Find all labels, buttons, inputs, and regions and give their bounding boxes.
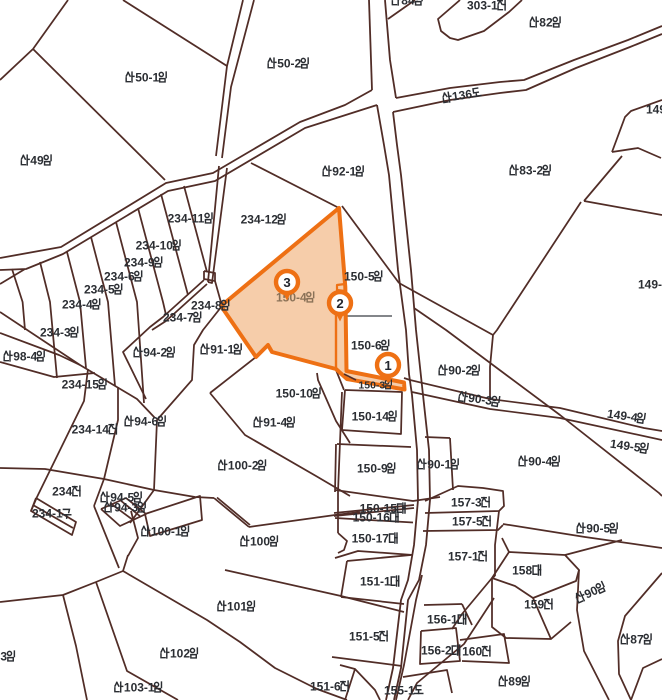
svg-text:94-3: 94-3	[114, 500, 138, 514]
svg-text:234-7: 234-7	[163, 310, 194, 324]
svg-text:50-1: 50-1	[135, 70, 159, 84]
svg-text:150-17: 150-17	[352, 531, 390, 545]
svg-text:234-11: 234-11	[168, 211, 205, 225]
svg-text:151-6: 151-6	[310, 679, 341, 693]
svg-text:159: 159	[524, 597, 544, 611]
svg-text:150-16: 150-16	[353, 510, 391, 524]
svg-text:49: 49	[30, 153, 44, 167]
svg-text:103: 103	[0, 649, 7, 663]
svg-text:50-2: 50-2	[277, 56, 301, 70]
svg-text:156-2: 156-2	[421, 643, 452, 657]
svg-text:156-1: 156-1	[427, 612, 458, 626]
svg-text:234-8: 234-8	[191, 298, 222, 312]
svg-text:234-4: 234-4	[62, 297, 93, 311]
svg-text:100-1: 100-1	[151, 524, 182, 538]
svg-text:234-12: 234-12	[241, 212, 279, 226]
svg-text:90-4: 90-4	[528, 454, 552, 468]
svg-text:160: 160	[462, 644, 482, 658]
svg-text:101: 101	[227, 599, 247, 613]
svg-text:94-2: 94-2	[143, 345, 167, 359]
svg-text:234-15: 234-15	[62, 377, 100, 391]
svg-text:84: 84	[401, 0, 415, 7]
svg-text:155-1: 155-1	[384, 683, 415, 697]
svg-text:234-10: 234-10	[136, 238, 174, 252]
svg-text:102: 102	[170, 646, 190, 660]
svg-text:103-1: 103-1	[124, 680, 155, 694]
svg-text:234-1: 234-1	[32, 506, 63, 520]
svg-text:150-3: 150-3	[358, 379, 385, 391]
svg-text:149-2: 149-2	[646, 102, 662, 116]
svg-text:94-6: 94-6	[134, 414, 158, 428]
svg-text:157-3: 157-3	[451, 495, 482, 509]
svg-text:90-1: 90-1	[427, 457, 451, 471]
svg-text:83-2: 83-2	[519, 163, 543, 177]
svg-text:150-9: 150-9	[357, 461, 388, 475]
svg-text:2: 2	[336, 296, 343, 311]
svg-text:149-3: 149-3	[638, 277, 662, 291]
svg-text:100-2: 100-2	[228, 458, 259, 472]
svg-text:234: 234	[52, 484, 72, 498]
svg-text:89: 89	[508, 674, 522, 688]
svg-text:158: 158	[512, 563, 532, 577]
svg-text:150-5: 150-5	[344, 269, 375, 283]
svg-text:98-4: 98-4	[13, 349, 37, 363]
svg-text:1: 1	[384, 358, 391, 373]
svg-text:91-4: 91-4	[263, 415, 287, 429]
svg-text:87: 87	[630, 632, 644, 646]
svg-text:303-1: 303-1	[467, 0, 498, 12]
svg-text:234-3: 234-3	[40, 325, 71, 339]
svg-text:157-5: 157-5	[452, 514, 483, 528]
svg-text:82: 82	[539, 15, 553, 29]
svg-text:151-5: 151-5	[349, 629, 380, 643]
svg-text:150-6: 150-6	[351, 338, 382, 352]
svg-text:234-6: 234-6	[104, 269, 135, 283]
svg-text:90-2: 90-2	[448, 363, 472, 377]
svg-text:234-14: 234-14	[72, 422, 110, 436]
svg-text:151-1: 151-1	[360, 574, 391, 588]
svg-text:234-9: 234-9	[124, 255, 155, 269]
svg-text:3: 3	[283, 275, 290, 290]
svg-text:150-14: 150-14	[352, 409, 390, 423]
svg-text:90-5: 90-5	[586, 521, 610, 535]
svg-text:157-1: 157-1	[448, 549, 479, 563]
svg-text:92-1: 92-1	[332, 164, 356, 178]
svg-text:91-1: 91-1	[210, 342, 234, 356]
svg-text:234-5: 234-5	[84, 282, 115, 296]
svg-text:100: 100	[250, 534, 270, 548]
svg-text:150-10: 150-10	[276, 386, 314, 400]
